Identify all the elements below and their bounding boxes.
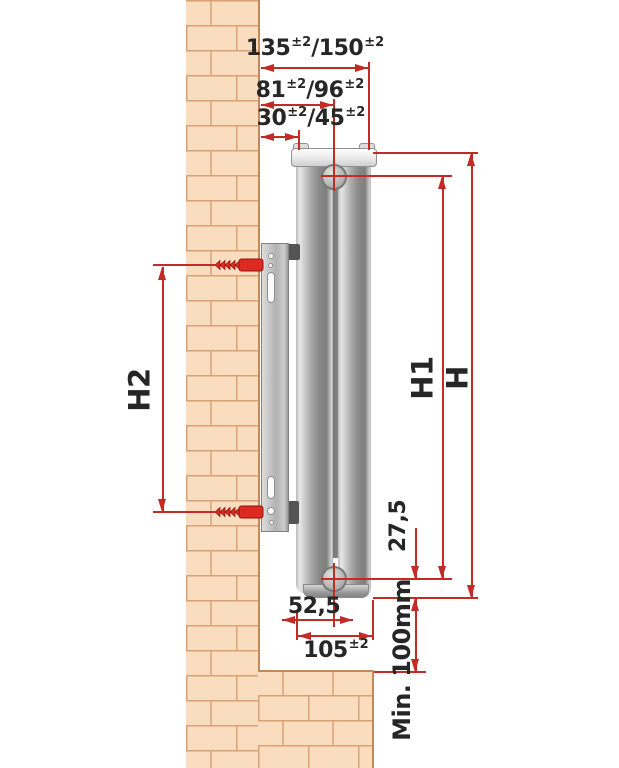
dim-tolerance: ±2 bbox=[345, 106, 365, 119]
arrow-height-overall-top bbox=[467, 153, 475, 166]
dim-label-min-clearance: Min. 100mm bbox=[390, 579, 414, 741]
brick-wall-ledge bbox=[258, 670, 374, 768]
ext-line-screw-top bbox=[153, 264, 215, 266]
arrow-total-depth-right bbox=[355, 64, 368, 72]
radiator-back-panel bbox=[296, 160, 333, 594]
bracket-hole-bottom-small bbox=[269, 520, 274, 525]
arrow-bracket-depth-left bbox=[261, 133, 274, 141]
ext-line-front-face bbox=[368, 62, 370, 150]
dim-tolerance: ±2 bbox=[287, 106, 307, 119]
arrow-bracket-depth-right bbox=[285, 133, 298, 141]
dim-line-height-bracket bbox=[162, 267, 164, 512]
bracket-hole-top-small-1 bbox=[268, 253, 274, 259]
arrow-pipe-centers-top bbox=[438, 176, 446, 189]
brick-wall bbox=[186, 0, 260, 768]
dim-value: 30 bbox=[257, 108, 287, 130]
ext-line-back-face bbox=[298, 130, 300, 150]
arrow-pipe-centers-bottom bbox=[438, 566, 446, 579]
radiator-front-panel bbox=[338, 160, 371, 598]
ext-line-top-pipe-center bbox=[321, 175, 452, 177]
dim-label-total-depth: 135±2/150±2 bbox=[258, 37, 372, 61]
dim-value: 150 bbox=[319, 38, 363, 60]
dim-label-pipe-depth: 81±2/96±2 bbox=[258, 79, 362, 103]
dim-value: 45 bbox=[315, 108, 345, 130]
dim-label-height-pipe-centers: H1 bbox=[409, 356, 438, 399]
arrow-height-overall-bottom bbox=[467, 585, 475, 598]
dim-tolerance: ±2 bbox=[291, 36, 311, 49]
dim-label-pipe-bottom-offset: 27,5 bbox=[388, 500, 410, 552]
ext-line-radiator-top bbox=[373, 152, 478, 154]
dim-tolerance: ±2 bbox=[344, 78, 364, 91]
dim-value: 135 bbox=[246, 38, 290, 60]
dim-separator: / bbox=[311, 38, 319, 60]
bracket-hole-top-small-2 bbox=[268, 263, 273, 268]
dim-value: 81 bbox=[256, 80, 286, 102]
arrow-bracket-height-bottom bbox=[158, 499, 166, 512]
bracket-slot-top bbox=[267, 272, 275, 303]
dim-line-total-depth bbox=[261, 67, 368, 69]
arrow-total-depth-left bbox=[261, 64, 274, 72]
dim-label-bottom-depth: 105±2 bbox=[296, 638, 376, 664]
wall-bracket-rail bbox=[261, 243, 289, 532]
dim-label-height-bracket: H2 bbox=[126, 368, 155, 411]
ext-line-front-face-bottom bbox=[372, 600, 374, 640]
dim-value: 105 bbox=[303, 640, 347, 662]
dim-tolerance: ±2 bbox=[364, 36, 384, 49]
dim-tolerance: ±2 bbox=[286, 78, 306, 91]
wall-plug-screw-bottom bbox=[212, 504, 264, 520]
diagram-canvas: 135±2/150±2 81±2/96±2 30±2/45±2 52,5 105… bbox=[0, 0, 619, 768]
wall-plug-screw-top bbox=[212, 257, 264, 273]
bracket-slot-bottom bbox=[267, 476, 275, 499]
bracket-hole-bottom-screw bbox=[267, 507, 275, 515]
dim-tolerance: ±2 bbox=[349, 638, 369, 651]
arrow-bracket-height-top bbox=[158, 267, 166, 280]
ext-line-bottom-pipe-center bbox=[321, 578, 452, 580]
dim-separator: / bbox=[306, 80, 314, 102]
dim-label-bracket-depth: 30±2/45±2 bbox=[258, 107, 364, 131]
arrow-pipe-from-back-right bbox=[340, 616, 353, 624]
dim-separator: / bbox=[307, 108, 315, 130]
dim-value: 96 bbox=[314, 80, 344, 102]
arrow-pipe-bottom-offset bbox=[411, 566, 419, 579]
dim-label-height-overall: H bbox=[444, 366, 473, 390]
dim-label-pipe-from-back: 52,5 bbox=[288, 596, 340, 618]
